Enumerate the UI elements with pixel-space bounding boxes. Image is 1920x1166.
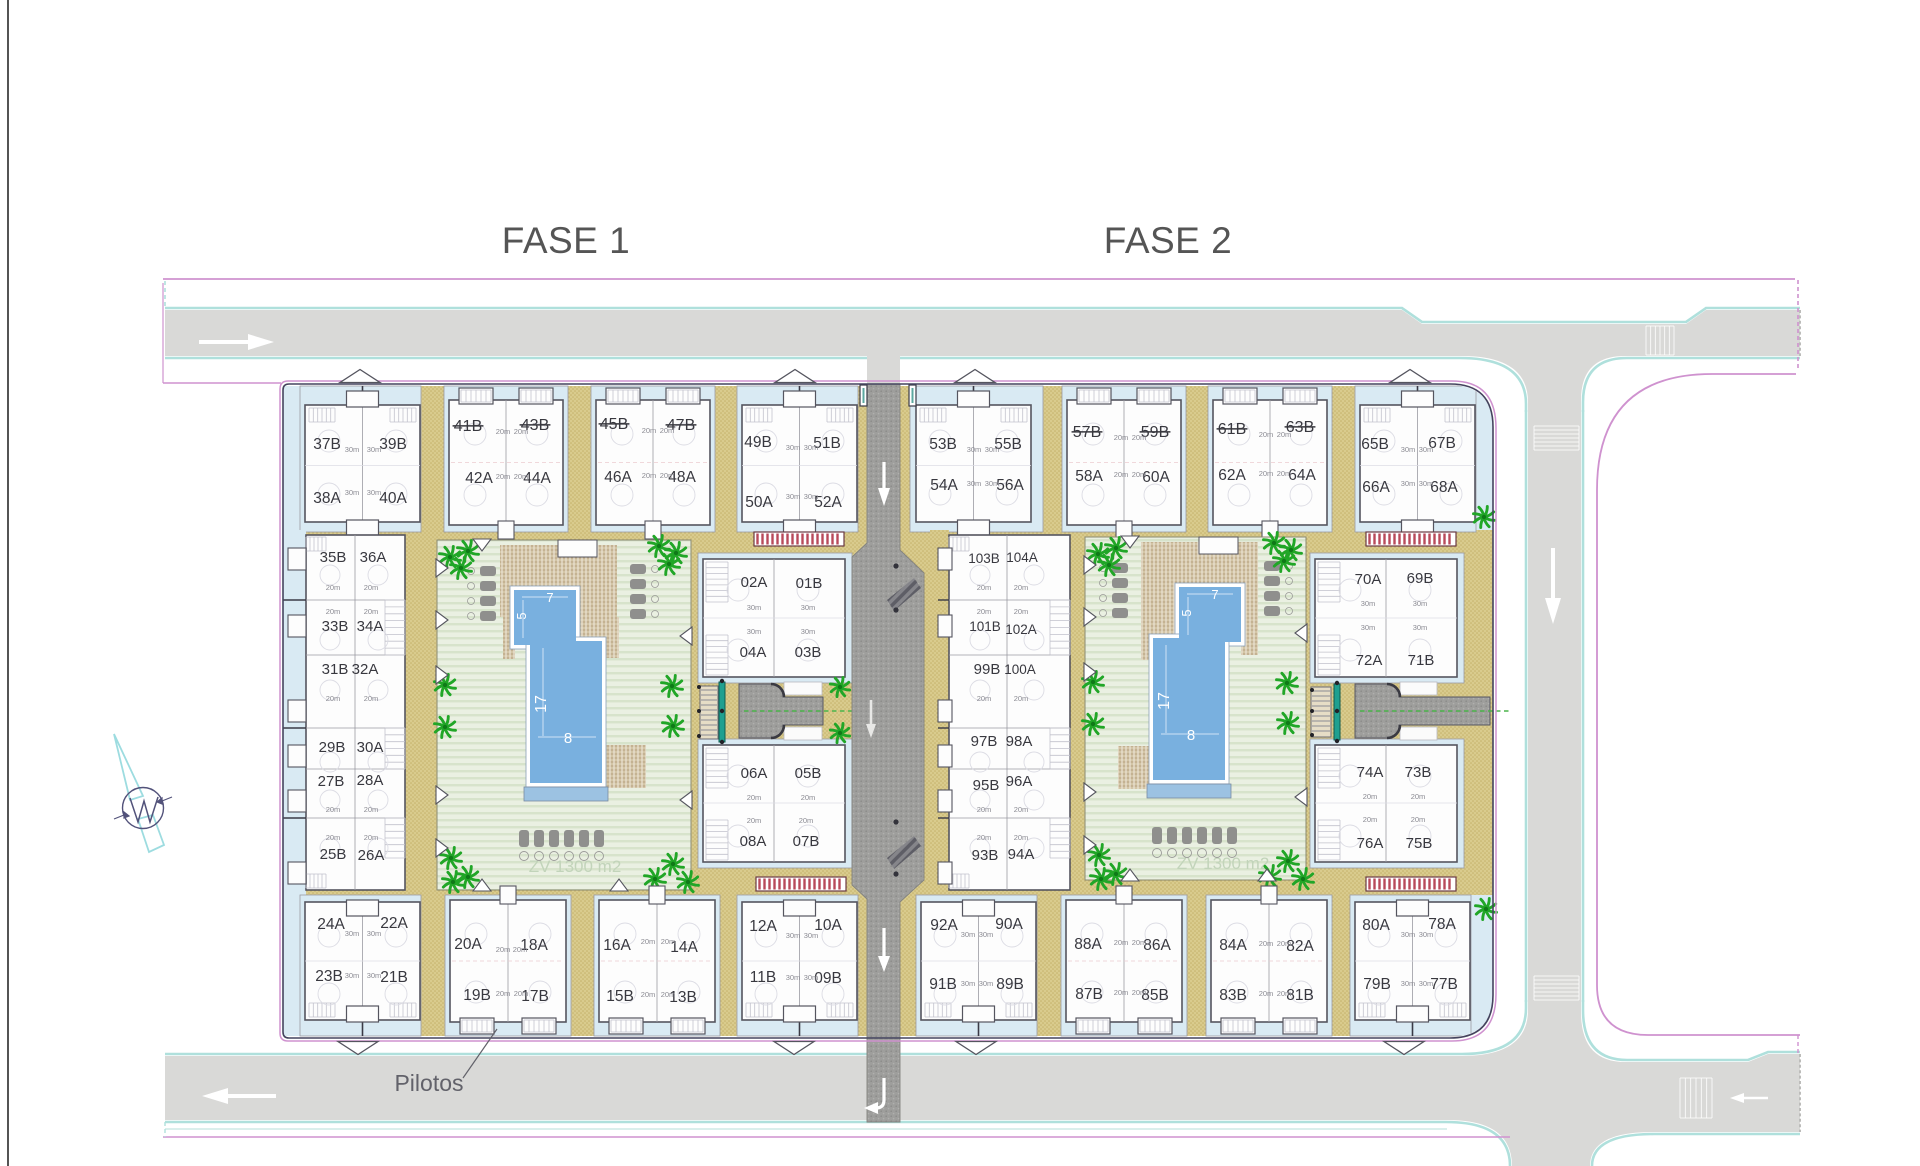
svg-text:7: 7 <box>1211 587 1218 602</box>
svg-text:03B: 03B <box>795 644 822 661</box>
svg-text:12A: 12A <box>749 918 777 935</box>
svg-text:37B: 37B <box>313 436 341 453</box>
svg-text:17: 17 <box>1156 692 1173 710</box>
svg-text:20m: 20m <box>326 833 341 842</box>
svg-text:30m: 30m <box>804 973 819 982</box>
svg-text:20m: 20m <box>496 945 511 954</box>
svg-text:10A: 10A <box>814 917 842 934</box>
svg-text:20m: 20m <box>496 472 511 481</box>
svg-text:20m: 20m <box>496 427 511 436</box>
svg-text:25B: 25B <box>320 846 347 863</box>
svg-text:93B: 93B <box>972 847 999 864</box>
svg-text:76A: 76A <box>1357 835 1384 852</box>
svg-text:20m: 20m <box>660 471 675 480</box>
svg-text:53B: 53B <box>929 436 957 453</box>
svg-text:58A: 58A <box>1075 468 1103 485</box>
svg-text:80A: 80A <box>1362 917 1390 934</box>
svg-text:30m: 30m <box>1419 979 1434 988</box>
svg-text:20m: 20m <box>977 694 992 703</box>
svg-text:62A: 62A <box>1218 467 1246 484</box>
svg-text:96A: 96A <box>1006 773 1033 790</box>
svg-text:32A: 32A <box>352 661 379 678</box>
svg-text:20m: 20m <box>1014 694 1029 703</box>
svg-text:30m: 30m <box>961 979 976 988</box>
svg-text:30m: 30m <box>801 603 816 612</box>
svg-text:20m: 20m <box>1259 989 1274 998</box>
svg-text:ZV 1300 m2: ZV 1300 m2 <box>529 857 622 876</box>
svg-text:20m: 20m <box>1114 470 1129 479</box>
svg-text:8: 8 <box>1187 727 1195 744</box>
svg-text:20m: 20m <box>1014 607 1029 616</box>
svg-text:20m: 20m <box>1411 792 1426 801</box>
svg-text:20m: 20m <box>326 805 341 814</box>
svg-text:30m: 30m <box>786 492 801 501</box>
svg-text:20m: 20m <box>977 805 992 814</box>
svg-text:20m: 20m <box>364 833 379 842</box>
svg-text:20m: 20m <box>1014 805 1029 814</box>
svg-text:20m: 20m <box>977 583 992 592</box>
svg-text:66A: 66A <box>1362 479 1390 496</box>
svg-text:30A: 30A <box>357 739 384 756</box>
svg-text:50A: 50A <box>745 494 773 511</box>
svg-text:20m: 20m <box>1014 833 1029 842</box>
svg-text:54A: 54A <box>930 477 958 494</box>
svg-text:20m: 20m <box>642 471 657 480</box>
svg-text:20m: 20m <box>1014 583 1029 592</box>
svg-text:23B: 23B <box>315 968 343 985</box>
svg-text:56A: 56A <box>996 477 1024 494</box>
svg-text:99B: 99B <box>974 661 1001 678</box>
svg-text:20m: 20m <box>364 805 379 814</box>
svg-text:20m: 20m <box>1259 469 1274 478</box>
svg-text:09B: 09B <box>814 970 842 987</box>
svg-text:20m: 20m <box>364 583 379 592</box>
svg-text:30m: 30m <box>367 488 382 497</box>
svg-text:04A: 04A <box>740 644 767 661</box>
svg-text:97B: 97B <box>971 733 998 750</box>
svg-text:87B: 87B <box>1075 986 1103 1003</box>
svg-text:7: 7 <box>546 590 553 605</box>
svg-text:20m: 20m <box>1277 469 1292 478</box>
svg-text:30m: 30m <box>985 479 1000 488</box>
svg-text:30m: 30m <box>804 931 819 940</box>
svg-text:20m: 20m <box>326 607 341 616</box>
svg-text:86A: 86A <box>1143 937 1171 954</box>
svg-text:104A: 104A <box>1006 550 1038 565</box>
svg-text:30m: 30m <box>367 971 382 980</box>
svg-text:02A: 02A <box>741 574 768 591</box>
svg-text:98A: 98A <box>1006 733 1033 750</box>
svg-text:65B: 65B <box>1361 436 1389 453</box>
svg-text:20m: 20m <box>514 472 529 481</box>
svg-text:71B: 71B <box>1408 652 1435 669</box>
svg-text:20m: 20m <box>799 816 814 825</box>
svg-text:30m: 30m <box>967 479 982 488</box>
svg-text:36A: 36A <box>360 549 387 566</box>
svg-text:30m: 30m <box>1401 479 1416 488</box>
svg-text:20m: 20m <box>1259 939 1274 948</box>
svg-text:100A: 100A <box>1004 662 1036 677</box>
svg-text:92A: 92A <box>930 917 958 934</box>
svg-text:20m: 20m <box>747 793 762 802</box>
svg-text:20A: 20A <box>454 936 482 953</box>
svg-text:20m: 20m <box>977 833 992 842</box>
svg-text:20m: 20m <box>1277 430 1292 439</box>
svg-text:08A: 08A <box>740 833 767 850</box>
svg-text:94A: 94A <box>1008 846 1035 863</box>
svg-text:20m: 20m <box>1259 430 1274 439</box>
svg-text:39B: 39B <box>379 436 407 453</box>
svg-text:40A: 40A <box>379 490 407 507</box>
svg-text:46A: 46A <box>604 469 632 486</box>
svg-text:30m: 30m <box>979 979 994 988</box>
svg-text:30m: 30m <box>967 445 982 454</box>
svg-text:102A: 102A <box>1005 622 1037 637</box>
svg-text:30m: 30m <box>804 492 819 501</box>
svg-text:20m: 20m <box>1132 470 1147 479</box>
svg-text:30m: 30m <box>345 971 360 980</box>
svg-text:20m: 20m <box>661 990 676 999</box>
svg-text:91B: 91B <box>929 976 957 993</box>
svg-text:30m: 30m <box>1419 930 1434 939</box>
svg-text:83B: 83B <box>1219 987 1247 1004</box>
svg-text:20m: 20m <box>977 607 992 616</box>
svg-text:20m: 20m <box>1411 815 1426 824</box>
svg-text:72A: 72A <box>1356 652 1383 669</box>
svg-text:30m: 30m <box>747 627 762 636</box>
svg-text:20m: 20m <box>496 989 511 998</box>
svg-text:30m: 30m <box>1413 599 1428 608</box>
svg-text:20m: 20m <box>642 426 657 435</box>
svg-text:30m: 30m <box>345 929 360 938</box>
svg-text:30m: 30m <box>1413 623 1428 632</box>
svg-text:20m: 20m <box>513 945 528 954</box>
svg-text:101B: 101B <box>969 619 1001 634</box>
svg-text:68A: 68A <box>1430 479 1458 496</box>
svg-text:28A: 28A <box>357 772 384 789</box>
svg-text:38A: 38A <box>313 490 341 507</box>
svg-text:30m: 30m <box>985 445 1000 454</box>
svg-text:89B: 89B <box>996 976 1024 993</box>
svg-text:11B: 11B <box>750 969 776 986</box>
svg-text:20m: 20m <box>661 937 676 946</box>
svg-text:20m: 20m <box>326 583 341 592</box>
svg-text:69B: 69B <box>1407 570 1434 587</box>
svg-text:20m: 20m <box>1132 433 1147 442</box>
svg-text:30m: 30m <box>786 973 801 982</box>
svg-text:FASE 2: FASE 2 <box>1104 220 1232 261</box>
svg-text:60A: 60A <box>1142 469 1170 486</box>
svg-text:42A: 42A <box>465 470 493 487</box>
svg-text:06A: 06A <box>741 765 768 782</box>
svg-text:5: 5 <box>1179 609 1194 616</box>
svg-text:33B: 33B <box>322 618 349 635</box>
svg-text:52A: 52A <box>814 494 842 511</box>
svg-text:8: 8 <box>564 730 572 747</box>
svg-text:90A: 90A <box>995 916 1023 933</box>
svg-text:15B: 15B <box>606 988 634 1005</box>
svg-text:30m: 30m <box>367 929 382 938</box>
svg-text:103B: 103B <box>968 551 1000 566</box>
svg-text:30m: 30m <box>1419 479 1434 488</box>
svg-text:30m: 30m <box>979 930 994 939</box>
svg-text:ZV 1300 m2: ZV 1300 m2 <box>1177 854 1270 873</box>
svg-text:21B: 21B <box>380 969 408 986</box>
svg-text:73B: 73B <box>1405 764 1432 781</box>
svg-text:74A: 74A <box>1357 764 1384 781</box>
svg-text:FASE 1: FASE 1 <box>502 220 630 261</box>
svg-text:34A: 34A <box>357 618 384 635</box>
svg-text:70A: 70A <box>1355 571 1382 588</box>
svg-text:05B: 05B <box>795 765 822 782</box>
svg-text:20m: 20m <box>326 694 341 703</box>
svg-text:30m: 30m <box>786 931 801 940</box>
svg-text:30m: 30m <box>747 603 762 612</box>
svg-text:20m: 20m <box>1277 939 1292 948</box>
svg-text:30m: 30m <box>1361 623 1376 632</box>
svg-text:Pilotos: Pilotos <box>394 1070 463 1096</box>
svg-text:20m: 20m <box>514 427 529 436</box>
svg-text:64A: 64A <box>1288 467 1316 484</box>
svg-text:20m: 20m <box>747 816 762 825</box>
svg-text:20m: 20m <box>1132 938 1147 947</box>
svg-text:20m: 20m <box>641 937 656 946</box>
svg-text:30m: 30m <box>1401 930 1416 939</box>
svg-text:30m: 30m <box>1401 979 1416 988</box>
svg-text:20m: 20m <box>364 694 379 703</box>
svg-text:22A: 22A <box>380 915 408 932</box>
svg-text:29B: 29B <box>319 739 346 756</box>
svg-text:20m: 20m <box>1114 433 1129 442</box>
svg-text:88A: 88A <box>1074 936 1102 953</box>
svg-text:30m: 30m <box>801 627 816 636</box>
svg-text:77B: 77B <box>1430 976 1458 993</box>
svg-text:20m: 20m <box>660 426 675 435</box>
svg-text:30m: 30m <box>345 445 360 454</box>
svg-text:30m: 30m <box>786 443 801 452</box>
svg-text:30m: 30m <box>1361 599 1376 608</box>
svg-text:16A: 16A <box>603 937 631 954</box>
svg-text:30m: 30m <box>367 445 382 454</box>
svg-text:5: 5 <box>514 612 529 619</box>
svg-text:30m: 30m <box>804 443 819 452</box>
svg-text:84A: 84A <box>1219 937 1247 954</box>
svg-text:20m: 20m <box>1277 989 1292 998</box>
svg-text:30m: 30m <box>1401 445 1416 454</box>
svg-text:20m: 20m <box>364 607 379 616</box>
svg-text:30m: 30m <box>1419 445 1434 454</box>
svg-text:31B: 31B <box>322 661 349 678</box>
svg-text:27B: 27B <box>318 773 345 790</box>
svg-text:20m: 20m <box>1114 988 1129 997</box>
svg-text:07B: 07B <box>793 833 820 850</box>
svg-text:26A: 26A <box>358 847 385 864</box>
svg-text:17: 17 <box>533 695 550 713</box>
svg-text:95B: 95B <box>973 777 1000 794</box>
svg-text:01B: 01B <box>796 575 823 592</box>
svg-text:20m: 20m <box>1114 938 1129 947</box>
svg-text:24A: 24A <box>317 916 345 933</box>
svg-text:79B: 79B <box>1363 976 1391 993</box>
svg-text:20m: 20m <box>641 990 656 999</box>
svg-text:75B: 75B <box>1406 835 1433 852</box>
svg-text:20m: 20m <box>1363 815 1378 824</box>
svg-text:20m: 20m <box>1363 792 1378 801</box>
svg-text:20m: 20m <box>801 793 816 802</box>
svg-text:19B: 19B <box>463 987 491 1004</box>
svg-text:35B: 35B <box>320 549 347 566</box>
svg-text:30m: 30m <box>345 488 360 497</box>
svg-text:49B: 49B <box>744 434 772 451</box>
svg-text:20m: 20m <box>514 989 529 998</box>
svg-text:30m: 30m <box>961 930 976 939</box>
svg-text:20m: 20m <box>1132 988 1147 997</box>
